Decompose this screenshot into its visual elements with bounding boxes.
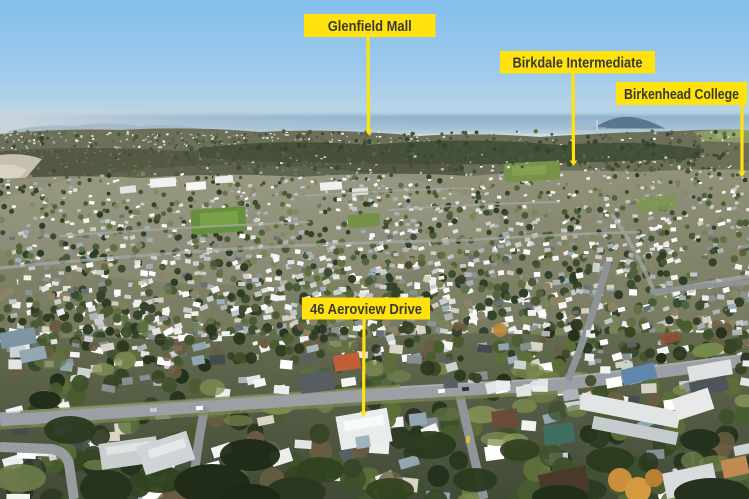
svg-text:Birkdale Intermediate: Birkdale Intermediate	[513, 56, 643, 72]
svg-text:46 Aeroview Drive: 46 Aeroview Drive	[310, 302, 422, 318]
svg-text:Birkenhead College: Birkenhead College	[624, 87, 739, 103]
svg-text:Glenfield Mall: Glenfield Mall	[328, 19, 412, 35]
